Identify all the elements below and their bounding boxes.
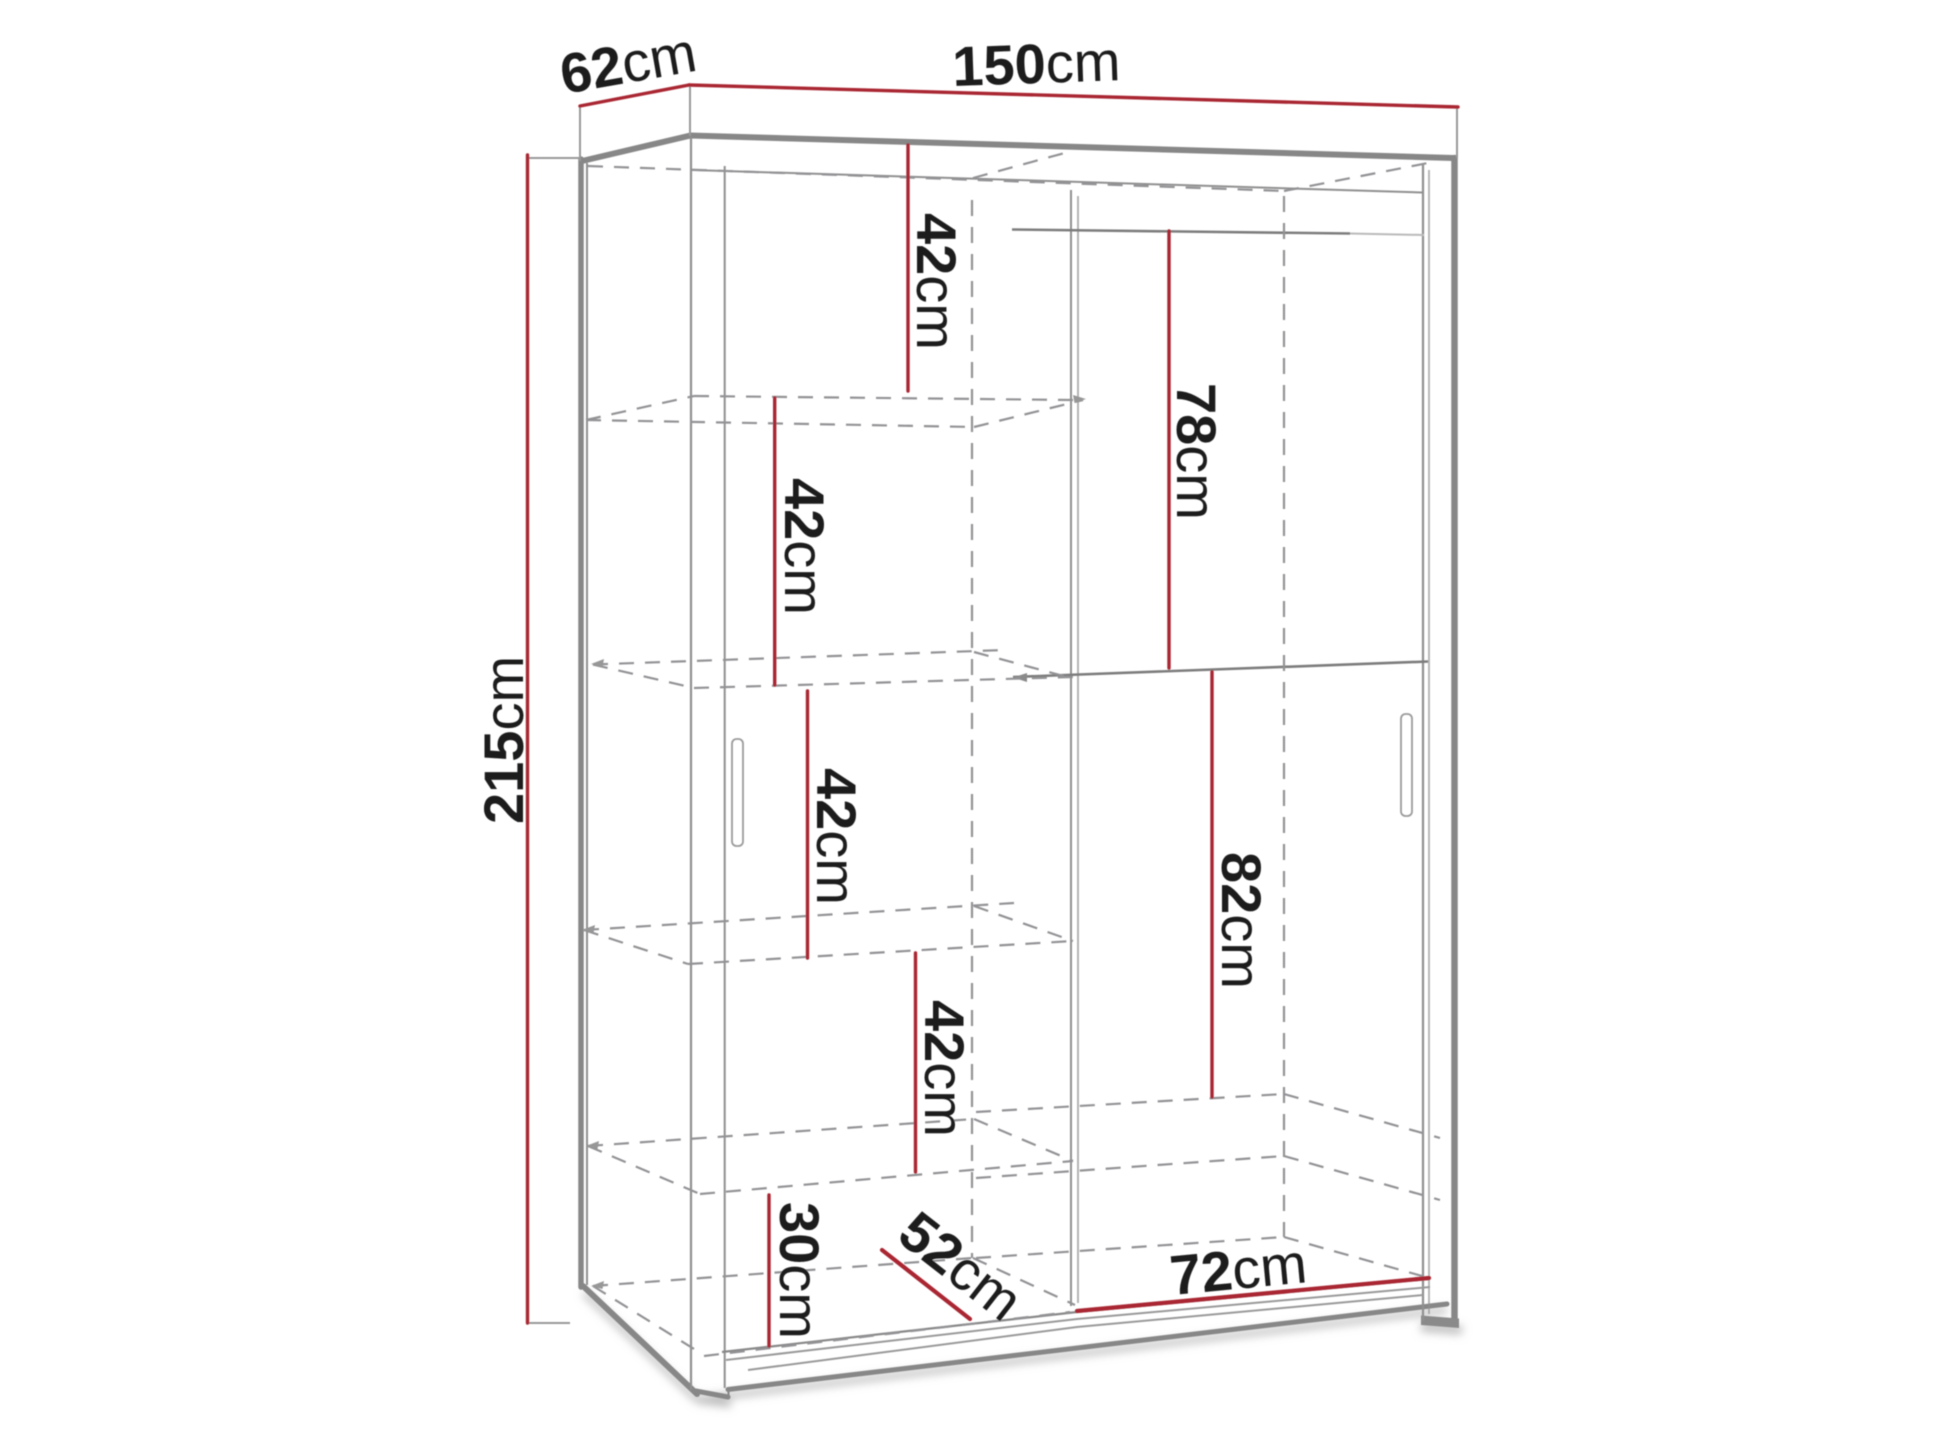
svg-text:42cm: 42cm — [773, 478, 836, 615]
svg-text:215cm: 215cm — [472, 656, 535, 824]
svg-text:150cm: 150cm — [951, 29, 1121, 98]
svg-text:82cm: 82cm — [1210, 852, 1273, 989]
svg-text:42cm: 42cm — [913, 1000, 976, 1137]
svg-text:42cm: 42cm — [905, 213, 968, 350]
svg-text:30cm: 30cm — [768, 1202, 831, 1339]
svg-text:78cm: 78cm — [1165, 383, 1228, 520]
svg-text:42cm: 42cm — [805, 768, 868, 905]
svg-text:72cm: 72cm — [1167, 1231, 1309, 1307]
